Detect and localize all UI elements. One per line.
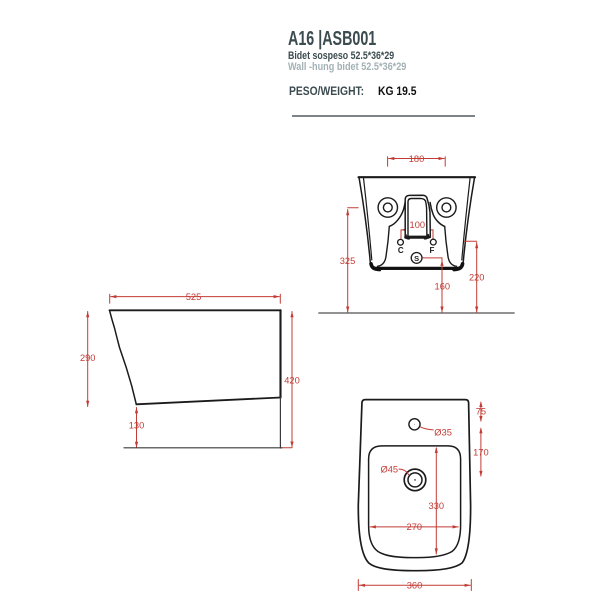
svg-text:180: 180 (409, 154, 425, 164)
svg-text:525: 525 (186, 292, 202, 302)
svg-text:360: 360 (407, 581, 423, 591)
svg-text:C: C (398, 246, 404, 255)
svg-text:325: 325 (340, 256, 356, 266)
svg-text:130: 130 (129, 421, 145, 431)
svg-text:270: 270 (407, 522, 423, 532)
svg-text:160: 160 (435, 282, 451, 292)
svg-text:F: F (430, 246, 435, 255)
svg-text:420: 420 (284, 375, 300, 385)
svg-text:330: 330 (429, 501, 445, 511)
svg-text:290: 290 (80, 353, 96, 363)
svg-text:Ø35: Ø35 (434, 428, 452, 438)
svg-text:220: 220 (469, 272, 485, 282)
svg-text:170: 170 (473, 448, 489, 458)
svg-text:Ø45: Ø45 (381, 464, 399, 474)
svg-text:75: 75 (476, 407, 486, 417)
svg-text:100: 100 (410, 220, 426, 230)
svg-text:S: S (414, 254, 419, 263)
